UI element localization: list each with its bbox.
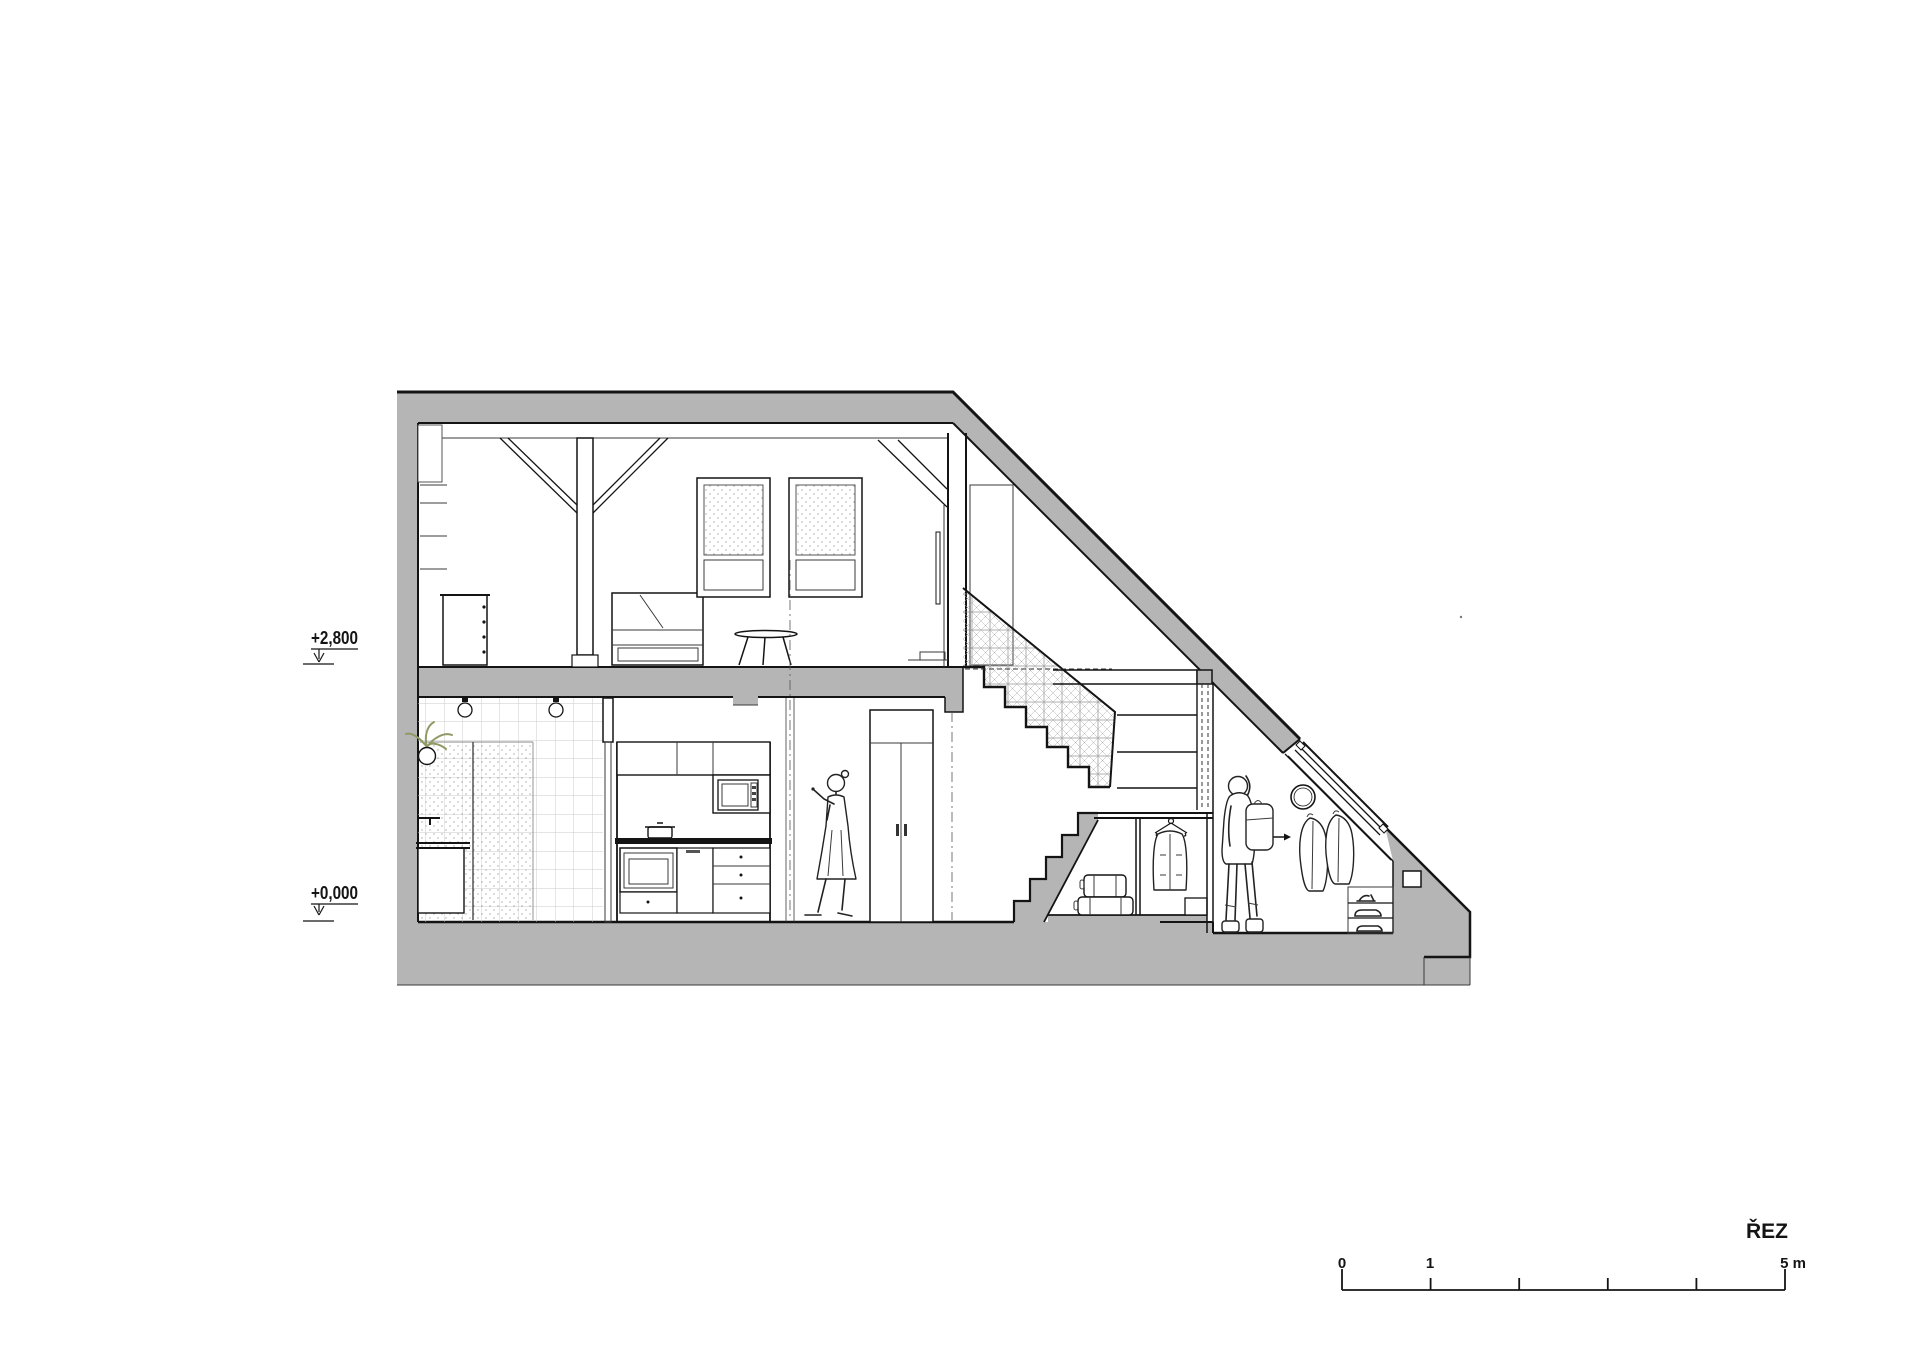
bathroom [406,698,613,922]
window-1 [697,478,770,597]
wall-shelves [420,485,447,569]
architectural-section-sheet: +2,800 +0,000 ŘEZ 0 1 5 m [0,0,1920,1358]
standing-person-figure [1222,776,1273,932]
roof-brace [878,440,947,507]
step-block [1185,898,1207,915]
sofa [612,593,703,665]
oven [620,848,677,913]
hanging-coats [1300,811,1354,891]
newel-post-cap [1197,670,1212,684]
round-mirror [1291,785,1315,809]
walking-person-figure [805,771,856,917]
hair-bun [842,771,849,778]
window-2 [789,478,862,597]
microwave [718,780,758,810]
kitchen [615,742,772,922]
dresser [440,595,490,665]
boot [1222,921,1239,932]
level-marker-icon [303,649,358,664]
drawer-stack [713,848,770,913]
drawing-title: ŘEZ [1746,1219,1788,1243]
backpack [1246,804,1273,850]
scale-label-1: 1 [1426,1255,1434,1272]
shoe-shelf [1348,887,1393,933]
dress [817,795,856,879]
washbasin-cabinet [416,843,470,913]
wardrobe [870,710,933,922]
level-marker-icon [303,904,358,921]
upper-floor-room [418,425,1013,667]
level-label-upper: +2,800 [311,628,358,648]
hall [786,560,952,922]
hanging-coat [1153,819,1187,891]
level-label-ground: +0,000 [311,883,358,903]
scale-bar: 0 1 5 m [1338,1255,1806,1290]
bathroom-door [605,742,611,922]
wall-recess [418,425,442,482]
boot [1246,919,1263,932]
side-table [735,631,797,666]
suitcase [1080,875,1126,897]
stray-mark [1460,616,1462,618]
suitcase [1074,897,1133,915]
cooking-pot [645,823,675,838]
section-drawing: +2,800 +0,000 ŘEZ 0 1 5 m [0,0,1920,1358]
countertop [615,838,772,844]
glass-door-handle [936,532,940,604]
cabinet-front [677,848,713,913]
scale-label-5m: 5 m [1780,1255,1806,1272]
scale-label-0: 0 [1338,1255,1346,1272]
title-block: ŘEZ 0 1 5 m [1338,1219,1806,1290]
level-annotations: +2,800 +0,000 [303,628,358,921]
upper-cabinets [617,742,770,775]
